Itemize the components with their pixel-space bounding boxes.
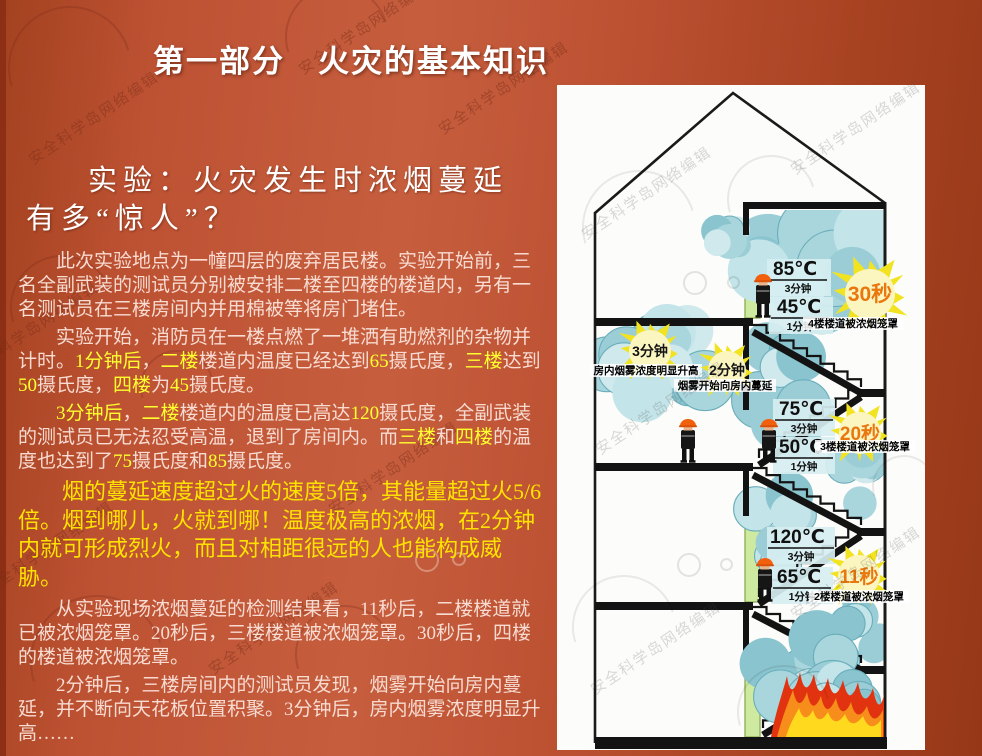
ceiling-slab (743, 202, 885, 209)
svg-text:120℃: 120℃ (770, 527, 825, 548)
roof-outline (595, 93, 885, 213)
svg-text:3分钟: 3分钟 (632, 343, 668, 359)
text-segment: 摄氏度和 (132, 451, 208, 472)
text-segment: ， (123, 403, 142, 424)
temp-label-4f-3min: 85℃ 3分钟 (767, 259, 831, 296)
body-paragraphs: 此次实验地点为一幢四层的废弃居民楼。实验开始前，三名全副武装的测试员分别被安排二… (18, 250, 545, 750)
interior-wall (743, 209, 749, 235)
caption-4f: 4楼楼道被浓烟笼罩 (808, 317, 898, 330)
caption-room-2min: 烟雾开始向房内蔓延 (678, 379, 773, 392)
firefighter-icon (679, 419, 697, 463)
svg-text:45℃: 45℃ (777, 297, 821, 318)
slide-title: 第一部分 火灾的基本知识 (153, 36, 549, 81)
text-segment: 3分钟后 (56, 403, 123, 424)
experiment-diagram: 85℃ 3分钟 45℃ 1分钟 75℃ 3分钟 (557, 85, 925, 750)
text-segment: 和 (436, 427, 455, 448)
text-segment: 二楼 (161, 351, 199, 372)
floor-slab-2f (595, 602, 753, 610)
temperature-labels: 85℃ 3分钟 45℃ 1分钟 75℃ 3分钟 (767, 259, 835, 604)
floor-slab-3f (595, 463, 753, 471)
text-segment: ， (142, 351, 161, 372)
paragraph: 3分钟后，二楼楼道内的温度已高达120摄氏度，全副武装的测试员已无法忍受高温，退… (18, 402, 545, 474)
svg-text:65℃: 65℃ (777, 567, 821, 588)
paragraph: 烟的蔓延速度超过火的速度5倍，其能量超过火5/6倍。烟到哪儿，火就到哪！温度极高… (18, 478, 545, 592)
text-segment: 50 (18, 375, 37, 396)
text-segment: 从实验现场浓烟蔓延的检测结果看，11秒后，二楼楼道就已被浓烟笼罩。20秒后，三楼… (18, 599, 531, 668)
text-segment: 75 (113, 451, 132, 472)
svg-text:30秒: 30秒 (848, 282, 892, 306)
text-segment: 烟的蔓延速度超过火的速度5倍，其能量超过火5/6倍。烟到哪儿，火就到哪！温度极高… (18, 479, 541, 590)
text-segment: 二楼 (142, 403, 180, 424)
svg-text:3分钟: 3分钟 (788, 550, 815, 563)
decor-arc (0, 0, 154, 152)
svg-text:3分钟: 3分钟 (785, 282, 812, 295)
svg-text:11秒: 11秒 (839, 565, 878, 588)
text-segment: 三楼 (465, 351, 503, 372)
svg-text:85℃: 85℃ (773, 259, 817, 280)
text-segment: 四楼 (113, 375, 151, 396)
caption-2f: 2楼楼道被浓烟笼罩 (814, 590, 904, 603)
text-segment: 摄氏度， (37, 375, 113, 396)
caption-room-3min: 房内烟雾浓度明显升高 (594, 364, 699, 377)
text-segment: 三楼 (398, 427, 436, 448)
paragraph: 2分钟后，三楼房间内的测试员发现，烟雾开始向房内蔓延，并不断向天花板位置积聚。3… (18, 674, 545, 746)
ground-slab (595, 737, 887, 749)
text-segment: 四楼 (455, 427, 493, 448)
text-segment: 120 (351, 403, 380, 424)
slide-subtitle: 实验：火灾发生时浓烟蔓延有多“惊人”？ (26, 163, 542, 238)
text-segment: 楼道内的温度已高达 (180, 403, 351, 424)
text-segment: 65 (370, 351, 389, 372)
svg-text:75℃: 75℃ (779, 399, 823, 420)
presentation-slide: 安全科学岛网络编辑安全科学岛网络编辑安全科学岛网络编辑安全科学岛网络编辑安全科学… (0, 0, 982, 756)
text-segment: 摄氏度。 (189, 375, 265, 396)
text-segment: 为 (151, 375, 170, 396)
temp-label-2f-3min: 120℃ 3分钟 (767, 527, 835, 564)
paragraph: 实验开始，消防员在一楼点燃了一堆洒有助燃剂的杂物并计时。1分钟后，二楼楼道内温度… (18, 326, 545, 398)
building-cross-section: 85℃ 3分钟 45℃ 1分钟 75℃ 3分钟 (557, 85, 925, 750)
text-segment: 楼道内温度已经达到 (199, 351, 370, 372)
text-segment: 2分钟后，三楼房间内的测试员发现，烟雾开始向房内蔓延，并不断向天花板位置积聚。3… (18, 675, 541, 744)
text-segment: 摄氏度。 (227, 451, 303, 472)
caption-3f: 3楼楼道被浓烟笼罩 (820, 440, 910, 453)
text-segment: 摄氏度， (389, 351, 465, 372)
interior-wall (743, 471, 749, 516)
text-segment: 45 (170, 375, 189, 396)
paragraph: 此次实验地点为一幢四层的废弃居民楼。实验开始前，三名全副武装的测试员分别被安排二… (18, 250, 545, 322)
svg-text:3分钟: 3分钟 (791, 422, 818, 435)
text-segment: 此次实验地点为一幢四层的废弃居民楼。实验开始前，三名全副武装的测试员分别被安排二… (18, 251, 531, 320)
left-edge-strip (0, 0, 6, 756)
floor-slab-4f (595, 318, 753, 326)
temp-label-3f-3min: 75℃ 3分钟 (773, 399, 835, 436)
watermark-text: 安全科学岛网络编辑 (24, 66, 163, 169)
paragraph: 从实验现场浓烟蔓延的检测结果看，11秒后，二楼楼道就已被浓烟笼罩。20秒后，三楼… (18, 598, 545, 670)
svg-text:2分钟: 2分钟 (709, 362, 745, 378)
text-segment: 1分钟后 (75, 351, 142, 372)
text-segment: 达到 (503, 351, 541, 372)
text-segment: 85 (208, 451, 227, 472)
svg-text:1分钟: 1分钟 (791, 460, 818, 473)
